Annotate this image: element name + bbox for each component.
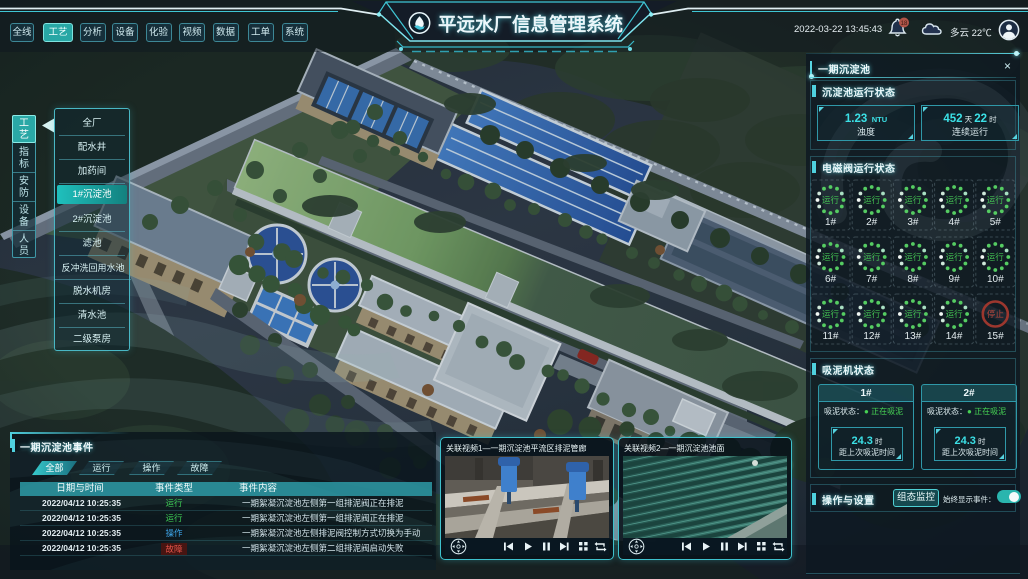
svg-text:运行: 运行 bbox=[904, 252, 922, 262]
svg-text:9#: 9# bbox=[949, 274, 961, 285]
svg-text:2#: 2# bbox=[866, 217, 878, 228]
svg-text:6#: 6# bbox=[825, 274, 837, 285]
svg-text:运行: 运行 bbox=[946, 252, 964, 262]
svg-text:4#: 4# bbox=[949, 217, 961, 228]
svg-text:13#: 13# bbox=[905, 331, 922, 342]
svg-text:1#: 1# bbox=[825, 217, 837, 228]
svg-text:运行: 运行 bbox=[863, 252, 881, 262]
svg-text:运行: 运行 bbox=[904, 195, 922, 205]
svg-text:14#: 14# bbox=[946, 331, 963, 342]
svg-text:运行: 运行 bbox=[822, 195, 840, 205]
svg-text:18: 18 bbox=[901, 21, 908, 27]
svg-text:10#: 10# bbox=[987, 274, 1004, 285]
svg-text:运行: 运行 bbox=[863, 195, 881, 205]
svg-text:7#: 7# bbox=[866, 274, 878, 285]
svg-text:8#: 8# bbox=[907, 274, 919, 285]
svg-text:11#: 11# bbox=[823, 331, 839, 342]
svg-text:运行: 运行 bbox=[946, 195, 964, 205]
svg-text:运行: 运行 bbox=[863, 309, 881, 319]
svg-text:3#: 3# bbox=[907, 217, 919, 228]
svg-text:15#: 15# bbox=[987, 331, 1004, 342]
svg-text:5#: 5# bbox=[990, 217, 1002, 228]
svg-text:运行: 运行 bbox=[987, 195, 1005, 205]
svg-text:运行: 运行 bbox=[822, 309, 840, 319]
svg-text:运行: 运行 bbox=[946, 309, 964, 319]
svg-text:12#: 12# bbox=[863, 331, 880, 342]
svg-text:运行: 运行 bbox=[822, 252, 840, 262]
svg-text:停止: 停止 bbox=[987, 309, 1005, 319]
svg-text:运行: 运行 bbox=[987, 252, 1005, 262]
svg-text:运行: 运行 bbox=[904, 309, 922, 319]
